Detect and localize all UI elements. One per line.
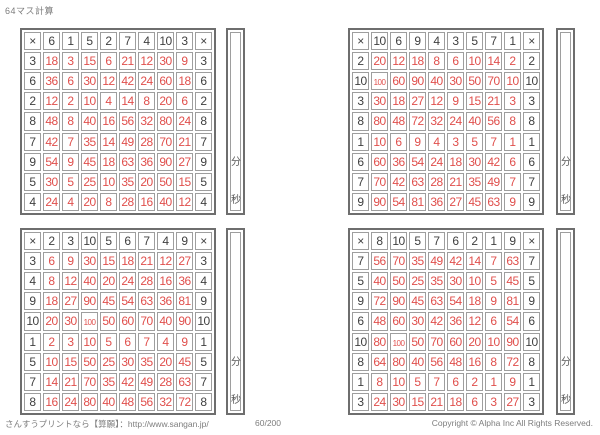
product-cell: 27 xyxy=(176,153,193,171)
product-cell: 40 xyxy=(409,353,426,371)
timer-write-area: 分 秒 xyxy=(560,232,571,411)
column-multiplier-cell: 5 xyxy=(466,32,483,50)
product-cell: 18 xyxy=(466,292,483,310)
product-cell: 50 xyxy=(81,353,98,371)
product-cell: 35 xyxy=(466,173,483,191)
product-cell: 14 xyxy=(485,52,502,70)
timer-write-area: 分 秒 xyxy=(560,32,571,211)
product-cell: 3 xyxy=(62,52,79,70)
row-multiplier-cell: 2 xyxy=(195,92,212,110)
row-multiplier-cell: 9 xyxy=(523,193,540,211)
multiplication-grid-bottom-left: ×231056749×36930151821122734812402024281… xyxy=(20,228,216,415)
product-cell: 60 xyxy=(157,72,174,90)
row-multiplier-cell: 5 xyxy=(195,353,212,371)
column-multiplier-cell: 9 xyxy=(409,32,426,50)
product-cell: 6 xyxy=(447,52,464,70)
product-cell: 6 xyxy=(485,312,502,330)
product-cell: 63 xyxy=(409,173,426,191)
product-cell: 36 xyxy=(447,312,464,330)
seconds-label: 秒 xyxy=(561,391,570,406)
row-multiplier-cell: 7 xyxy=(24,133,41,151)
product-cell: 70 xyxy=(390,252,407,270)
grid-row: 84884016563280248 xyxy=(24,112,212,130)
product-cell: 24 xyxy=(119,272,136,290)
row-multiplier-cell: 8 xyxy=(195,393,212,411)
product-cell: 64 xyxy=(371,353,388,371)
product-cell: 10 xyxy=(43,353,60,371)
product-cell: 49 xyxy=(428,252,445,270)
multiply-symbol-cell: × xyxy=(195,232,212,250)
product-cell: 27 xyxy=(447,193,464,211)
row-multiplier-cell: 6 xyxy=(24,72,41,90)
product-cell: 48 xyxy=(371,312,388,330)
column-multiplier-cell: 7 xyxy=(138,232,155,250)
row-multiplier-cell: 2 xyxy=(24,92,41,110)
grid-row: 714217035424928637 xyxy=(24,373,212,391)
product-cell: 1 xyxy=(504,133,521,151)
product-cell: 25 xyxy=(100,353,117,371)
multiply-symbol-cell: × xyxy=(24,32,41,50)
column-multiplier-cell: 4 xyxy=(157,232,174,250)
product-cell: 81 xyxy=(176,292,193,310)
product-cell: 24 xyxy=(176,112,193,130)
column-multiplier-cell: 3 xyxy=(447,32,464,50)
product-cell: 10 xyxy=(466,272,483,290)
product-cell: 100 xyxy=(81,312,98,330)
product-cell: 70 xyxy=(157,133,174,151)
column-multiplier-cell: 4 xyxy=(138,32,155,50)
product-cell: 12 xyxy=(138,52,155,70)
product-cell: 36 xyxy=(390,153,407,171)
product-cell: 30 xyxy=(466,153,483,171)
site-credit-text: さんすうプリントなら【算願】：http://www.sangan.jp/ xyxy=(5,418,209,430)
product-cell: 15 xyxy=(409,393,426,411)
product-cell: 27 xyxy=(409,92,426,110)
product-cell: 14 xyxy=(100,133,117,151)
product-cell: 45 xyxy=(409,292,426,310)
row-multiplier-cell: 7 xyxy=(24,373,41,391)
product-cell: 3 xyxy=(485,393,502,411)
product-cell: 14 xyxy=(119,92,136,110)
product-cell: 12 xyxy=(466,312,483,330)
row-multiplier-cell: 10 xyxy=(523,333,540,351)
product-cell: 30 xyxy=(119,353,136,371)
product-cell: 90 xyxy=(409,72,426,90)
grid-row: 12310567491 xyxy=(24,333,212,351)
row-multiplier-cell: 9 xyxy=(195,292,212,310)
product-cell: 16 xyxy=(138,193,155,211)
product-cell: 4 xyxy=(100,92,117,110)
product-cell: 70 xyxy=(138,312,155,330)
product-cell: 7 xyxy=(504,173,521,191)
product-cell: 24 xyxy=(43,193,60,211)
product-cell: 40 xyxy=(428,72,445,90)
product-cell: 30 xyxy=(447,72,464,90)
grid-row: 74273514492870217 xyxy=(24,133,212,151)
product-cell: 42 xyxy=(447,252,464,270)
product-cell: 70 xyxy=(485,72,502,90)
product-cell: 7 xyxy=(485,252,502,270)
product-cell: 72 xyxy=(409,112,426,130)
grid-row: 53052510352050155 xyxy=(24,173,212,191)
product-cell: 10 xyxy=(371,133,388,151)
product-cell: 100 xyxy=(390,333,407,351)
product-cell: 18 xyxy=(409,52,426,70)
column-multiplier-cell: 8 xyxy=(371,232,388,250)
product-cell: 30 xyxy=(409,312,426,330)
row-multiplier-cell: 6 xyxy=(523,153,540,171)
page-number: 60/200 xyxy=(255,418,281,428)
grid-row: 108010050706020109010 xyxy=(352,333,540,351)
product-cell: 27 xyxy=(176,252,193,270)
product-cell: 48 xyxy=(390,112,407,130)
product-cell: 6 xyxy=(447,373,464,391)
product-cell: 80 xyxy=(371,112,388,130)
row-multiplier-cell: 8 xyxy=(523,112,540,130)
product-cell: 63 xyxy=(504,252,521,270)
column-multiplier-cell: 1 xyxy=(62,32,79,50)
product-cell: 21 xyxy=(176,133,193,151)
product-cell: 80 xyxy=(157,112,174,130)
product-cell: 80 xyxy=(390,353,407,371)
product-cell: 90 xyxy=(504,333,521,351)
product-cell: 1 xyxy=(485,373,502,391)
product-cell: 12 xyxy=(428,92,445,110)
row-multiplier-cell: 2 xyxy=(352,52,369,70)
product-cell: 18 xyxy=(447,153,464,171)
product-cell: 5 xyxy=(100,333,117,351)
row-multiplier-cell: 4 xyxy=(24,193,41,211)
row-multiplier-cell: 9 xyxy=(195,153,212,171)
product-cell: 12 xyxy=(62,272,79,290)
product-cell: 14 xyxy=(43,373,60,391)
product-cell: 8 xyxy=(428,52,445,70)
product-cell: 8 xyxy=(138,92,155,110)
column-multiplier-cell: 1 xyxy=(504,32,521,50)
minutes-label: 分 xyxy=(231,353,240,368)
product-cell: 70 xyxy=(81,373,98,391)
product-cell: 42 xyxy=(390,173,407,191)
grid-row: 510155025303520455 xyxy=(24,353,212,371)
product-cell: 5 xyxy=(409,373,426,391)
product-cell: 6 xyxy=(504,153,521,171)
product-cell: 25 xyxy=(409,272,426,290)
grid-row: 88048723224405688 xyxy=(352,112,540,130)
grid-table: ×615274103×31831562112309363663012422460… xyxy=(20,28,216,215)
product-cell: 10 xyxy=(466,52,483,70)
product-cell: 4 xyxy=(62,193,79,211)
grid-row: 97290456354189819 xyxy=(352,292,540,310)
product-cell: 9 xyxy=(504,373,521,391)
product-cell: 6 xyxy=(62,72,79,90)
column-multiplier-cell: 4 xyxy=(428,32,445,50)
product-cell: 40 xyxy=(371,272,388,290)
grid-row: 66036542418304266 xyxy=(352,153,540,171)
product-cell: 70 xyxy=(371,173,388,191)
product-cell: 60 xyxy=(390,72,407,90)
product-cell: 32 xyxy=(157,393,174,411)
row-multiplier-cell: 10 xyxy=(195,312,212,330)
grid-row: 816248040485632728 xyxy=(24,393,212,411)
product-cell: 7 xyxy=(62,133,79,151)
product-cell: 7 xyxy=(138,333,155,351)
product-cell: 35 xyxy=(119,173,136,191)
product-cell: 30 xyxy=(371,92,388,110)
row-multiplier-cell: 9 xyxy=(24,153,41,171)
column-multiplier-cell: 2 xyxy=(100,32,117,50)
row-multiplier-cell: 9 xyxy=(24,292,41,310)
product-cell: 32 xyxy=(138,112,155,130)
row-multiplier-cell: 3 xyxy=(195,52,212,70)
product-cell: 24 xyxy=(62,393,79,411)
grid-row: 86480405648168728 xyxy=(352,353,540,371)
row-multiplier-cell: 1 xyxy=(352,133,369,151)
timer-box: 分 秒 xyxy=(556,28,575,215)
row-multiplier-cell: 3 xyxy=(352,393,369,411)
minutes-label: 分 xyxy=(231,153,240,168)
product-cell: 81 xyxy=(504,292,521,310)
product-cell: 48 xyxy=(447,353,464,371)
footer: さんすうプリントなら【算願】：http://www.sangan.jp/ 60/… xyxy=(0,418,600,432)
product-cell: 63 xyxy=(138,292,155,310)
grid-row: 54050253530105455 xyxy=(352,272,540,290)
product-cell: 8 xyxy=(100,193,117,211)
product-cell: 63 xyxy=(176,373,193,391)
product-cell: 28 xyxy=(138,272,155,290)
product-cell: 20 xyxy=(81,193,98,211)
column-multiplier-cell: 6 xyxy=(390,32,407,50)
row-multiplier-cell: 5 xyxy=(24,173,41,191)
column-multiplier-cell: 3 xyxy=(176,32,193,50)
product-cell: 15 xyxy=(466,92,483,110)
grid-row: 918279045546336819 xyxy=(24,292,212,310)
column-multiplier-cell: 10 xyxy=(157,32,174,50)
product-cell: 6 xyxy=(466,393,483,411)
product-cell: 54 xyxy=(43,153,60,171)
column-multiplier-cell: 2 xyxy=(43,232,60,250)
grid-row: 21221041482062 xyxy=(24,92,212,110)
product-cell: 36 xyxy=(43,72,60,90)
row-multiplier-cell: 7 xyxy=(195,133,212,151)
product-cell: 56 xyxy=(371,252,388,270)
column-multiplier-cell: 3 xyxy=(62,232,79,250)
row-multiplier-cell: 1 xyxy=(24,333,41,351)
row-multiplier-cell: 6 xyxy=(352,312,369,330)
column-multiplier-cell: 9 xyxy=(176,232,193,250)
row-multiplier-cell: 4 xyxy=(195,272,212,290)
product-cell: 24 xyxy=(371,393,388,411)
grid-row: 95494518633690279 xyxy=(24,153,212,171)
column-multiplier-cell: 5 xyxy=(81,32,98,50)
product-cell: 28 xyxy=(157,373,174,391)
product-cell: 9 xyxy=(176,333,193,351)
product-cell: 54 xyxy=(390,193,407,211)
product-cell: 21 xyxy=(119,52,136,70)
row-multiplier-cell: 2 xyxy=(523,52,540,70)
row-multiplier-cell: 6 xyxy=(523,312,540,330)
timer-box: 分 秒 xyxy=(226,28,245,215)
product-cell: 42 xyxy=(485,153,502,171)
row-multiplier-cell: 4 xyxy=(24,272,41,290)
product-cell: 6 xyxy=(100,52,117,70)
product-cell: 6 xyxy=(176,92,193,110)
product-cell: 20 xyxy=(371,52,388,70)
product-cell: 54 xyxy=(119,292,136,310)
product-cell: 3 xyxy=(62,333,79,351)
grid-row: 11069435711 xyxy=(352,133,540,151)
minutes-label: 分 xyxy=(561,153,570,168)
product-cell: 72 xyxy=(371,292,388,310)
product-cell: 8 xyxy=(485,353,502,371)
product-cell: 9 xyxy=(485,292,502,310)
product-cell: 40 xyxy=(466,112,483,130)
product-cell: 48 xyxy=(119,393,136,411)
product-cell: 8 xyxy=(504,112,521,130)
product-cell: 18 xyxy=(119,252,136,270)
product-cell: 40 xyxy=(100,393,117,411)
product-cell: 20 xyxy=(157,92,174,110)
product-cell: 63 xyxy=(485,193,502,211)
grid-row: 102030100506070409010 xyxy=(24,312,212,330)
multiply-symbol-cell: × xyxy=(195,32,212,50)
product-cell: 30 xyxy=(81,252,98,270)
product-cell: 45 xyxy=(466,193,483,211)
product-cell: 12 xyxy=(100,72,117,90)
grid-row: 3243015211863273 xyxy=(352,393,540,411)
multiply-symbol-cell: × xyxy=(24,232,41,250)
row-multiplier-cell: 8 xyxy=(24,112,41,130)
grid-row: 18105762191 xyxy=(352,373,540,391)
product-cell: 6 xyxy=(119,333,136,351)
multiplication-grid-top-left: ×615274103×31831562112309363663012422460… xyxy=(20,28,216,215)
product-cell: 50 xyxy=(466,72,483,90)
row-multiplier-cell: 3 xyxy=(523,393,540,411)
grid-row: 220121886101422 xyxy=(352,52,540,70)
product-cell: 5 xyxy=(485,272,502,290)
product-cell: 72 xyxy=(504,353,521,371)
row-multiplier-cell: 3 xyxy=(523,92,540,110)
product-cell: 35 xyxy=(100,373,117,391)
product-cell: 8 xyxy=(371,373,388,391)
product-cell: 40 xyxy=(157,312,174,330)
product-cell: 49 xyxy=(119,133,136,151)
product-cell: 12 xyxy=(390,52,407,70)
product-cell: 56 xyxy=(428,353,445,371)
product-cell: 54 xyxy=(447,292,464,310)
column-multiplier-cell: 10 xyxy=(81,232,98,250)
product-cell: 10 xyxy=(390,373,407,391)
product-cell: 4 xyxy=(157,333,174,351)
grid-row: 4244208281640124 xyxy=(24,193,212,211)
timer-write-area: 分 秒 xyxy=(230,232,241,411)
product-cell: 21 xyxy=(138,252,155,270)
product-cell: 9 xyxy=(409,133,426,151)
product-cell: 80 xyxy=(371,333,388,351)
row-multiplier-cell: 10 xyxy=(24,312,41,330)
copyright-text: Copyright © Alpha Inc All Rights Reserve… xyxy=(432,418,593,428)
product-cell: 5 xyxy=(62,173,79,191)
row-multiplier-cell: 8 xyxy=(352,353,369,371)
product-cell: 42 xyxy=(119,72,136,90)
product-cell: 35 xyxy=(409,252,426,270)
timer-write-area: 分 秒 xyxy=(230,32,241,211)
column-multiplier-cell: 9 xyxy=(504,232,521,250)
grid-table: ×231056749×36930151821122734812402024281… xyxy=(20,228,216,415)
product-cell: 60 xyxy=(390,312,407,330)
product-cell: 20 xyxy=(466,333,483,351)
product-cell: 90 xyxy=(157,153,174,171)
product-cell: 18 xyxy=(43,52,60,70)
row-multiplier-cell: 1 xyxy=(523,373,540,391)
row-multiplier-cell: 10 xyxy=(352,72,369,90)
row-multiplier-cell: 9 xyxy=(352,292,369,310)
product-cell: 18 xyxy=(447,393,464,411)
row-multiplier-cell: 10 xyxy=(523,72,540,90)
product-cell: 36 xyxy=(176,272,193,290)
seconds-label: 秒 xyxy=(231,391,240,406)
row-multiplier-cell: 1 xyxy=(195,333,212,351)
grid-row: 101006090403050701010 xyxy=(352,72,540,90)
product-cell: 60 xyxy=(371,153,388,171)
row-multiplier-cell: 6 xyxy=(352,153,369,171)
product-cell: 45 xyxy=(504,272,521,290)
product-cell: 70 xyxy=(428,333,445,351)
product-cell: 21 xyxy=(428,393,445,411)
row-multiplier-cell: 9 xyxy=(352,193,369,211)
product-cell: 49 xyxy=(485,173,502,191)
column-multiplier-cell: 5 xyxy=(409,232,426,250)
product-cell: 18 xyxy=(390,92,407,110)
product-cell: 15 xyxy=(62,353,79,371)
product-cell: 10 xyxy=(485,333,502,351)
product-cell: 8 xyxy=(43,272,60,290)
product-cell: 32 xyxy=(428,112,445,130)
product-cell: 63 xyxy=(119,153,136,171)
product-cell: 35 xyxy=(428,272,445,290)
row-multiplier-cell: 8 xyxy=(24,393,41,411)
row-multiplier-cell: 7 xyxy=(523,252,540,270)
column-multiplier-cell: 2 xyxy=(466,232,483,250)
column-multiplier-cell: 6 xyxy=(43,32,60,50)
column-multiplier-cell: 10 xyxy=(371,32,388,50)
product-cell: 50 xyxy=(409,333,426,351)
product-cell: 48 xyxy=(43,112,60,130)
product-cell: 45 xyxy=(100,292,117,310)
row-multiplier-cell: 5 xyxy=(352,272,369,290)
product-cell: 2 xyxy=(62,92,79,110)
row-multiplier-cell: 5 xyxy=(24,353,41,371)
product-cell: 9 xyxy=(447,92,464,110)
product-cell: 30 xyxy=(390,393,407,411)
row-multiplier-cell: 3 xyxy=(24,52,41,70)
grid-row: 318315621123093 xyxy=(24,52,212,70)
product-cell: 21 xyxy=(485,92,502,110)
product-cell: 16 xyxy=(157,272,174,290)
row-multiplier-cell: 7 xyxy=(352,252,369,270)
product-cell: 12 xyxy=(157,252,174,270)
grid-row: 64860304236126546 xyxy=(352,312,540,330)
multiply-symbol-cell: × xyxy=(523,32,540,50)
row-multiplier-cell: 5 xyxy=(523,272,540,290)
timer-box: 分 秒 xyxy=(556,228,575,415)
product-cell: 40 xyxy=(81,272,98,290)
product-cell: 24 xyxy=(138,72,155,90)
product-cell: 50 xyxy=(390,272,407,290)
product-cell: 2 xyxy=(504,52,521,70)
row-multiplier-cell: 8 xyxy=(352,112,369,130)
page-title: 64マス計算 xyxy=(5,4,54,17)
product-cell: 49 xyxy=(138,373,155,391)
